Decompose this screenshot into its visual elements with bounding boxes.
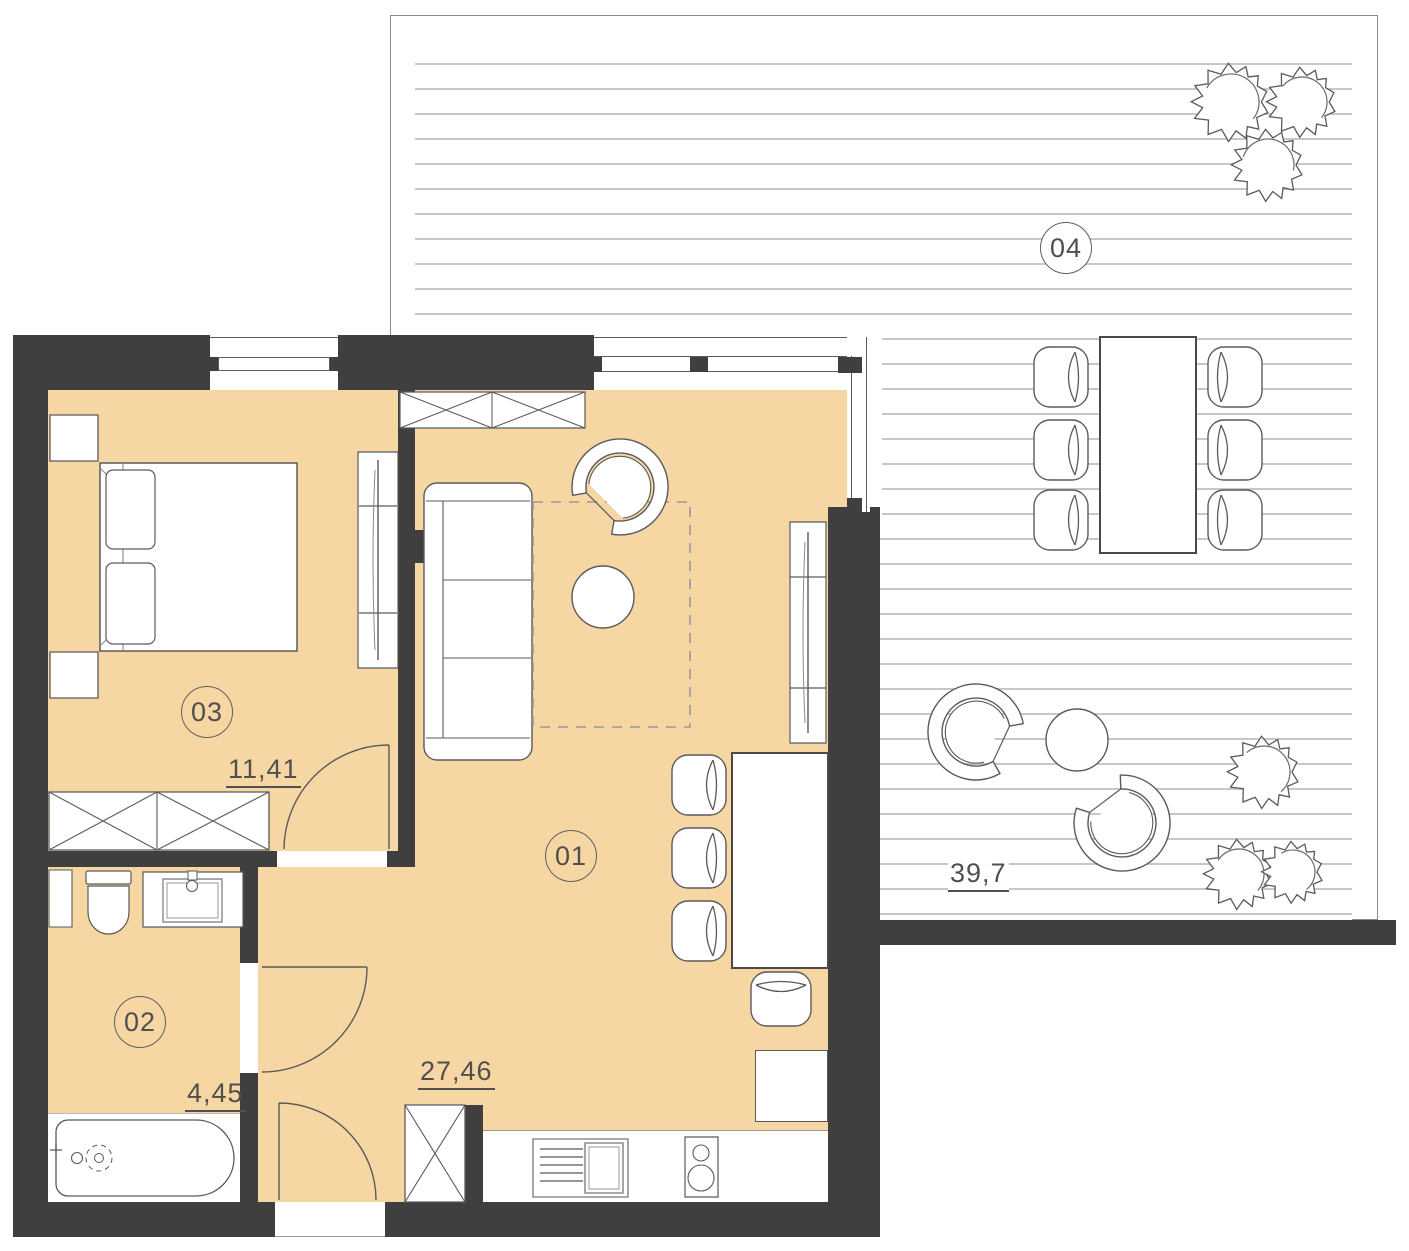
tree-icon (1262, 841, 1323, 903)
coffee-table (572, 566, 634, 628)
dining-table (732, 753, 828, 968)
room-02-number: 02 (124, 1007, 156, 1038)
living-radiator (790, 522, 826, 743)
terrace-dining-table (1100, 337, 1196, 553)
cooktop (685, 1137, 718, 1197)
dining-chair (751, 972, 811, 1026)
bathtub (50, 1120, 234, 1196)
nightstand (50, 415, 98, 698)
tree-icon (1227, 735, 1300, 808)
dining-chair (672, 901, 726, 961)
room-03-number: 03 (191, 697, 223, 728)
area-label-02: 4,45 (185, 1080, 246, 1112)
armchair (558, 419, 688, 549)
area-label-01: 27,46 (418, 1058, 495, 1090)
tree-icon (1203, 839, 1273, 909)
bed (100, 463, 297, 651)
tree-icon (1231, 129, 1302, 201)
room-badge-03: 03 (181, 686, 233, 738)
tree-icon (1191, 63, 1269, 141)
side-table (1046, 709, 1108, 771)
floor-plan: 01 02 03 04 27,46 4,45 11,41 39,7 (0, 0, 1409, 1251)
washbasin (143, 871, 243, 927)
area-label-03: 11,41 (226, 756, 301, 788)
bedroom-radiator (358, 452, 398, 668)
room-badge-04: 04 (1040, 222, 1092, 274)
toilet (86, 871, 131, 934)
bathroom-door (262, 967, 367, 1072)
pillow (106, 470, 155, 549)
terrace-chair (1034, 347, 1088, 407)
lounge-chair (912, 668, 1032, 792)
tall-cabinet-hatched (405, 1105, 465, 1202)
pillow (106, 563, 155, 644)
terrace-chair (1034, 490, 1088, 550)
room-badge-01: 01 (545, 830, 597, 882)
kitchen-sink (533, 1139, 628, 1197)
dining-chair (672, 755, 726, 815)
room-badge-02: 02 (114, 996, 166, 1048)
terrace-chair (1208, 347, 1262, 407)
terrace-chair (1208, 490, 1262, 550)
area-label-04: 39,7 (948, 860, 1009, 892)
room-04-number: 04 (1050, 233, 1082, 264)
lounge-chair (1060, 763, 1189, 891)
closet-hatched (49, 792, 269, 850)
dining-chair (672, 828, 726, 888)
bath-shelf (49, 870, 72, 927)
terrace-chair (1034, 420, 1088, 480)
entry-door (279, 1103, 376, 1200)
room-01-number: 01 (555, 841, 587, 872)
tree-icon (1266, 67, 1337, 138)
sofa (424, 483, 532, 760)
terrace-chair (1208, 420, 1262, 480)
wardrobe-hatched (400, 392, 585, 428)
plan-symbols (0, 0, 1409, 1251)
